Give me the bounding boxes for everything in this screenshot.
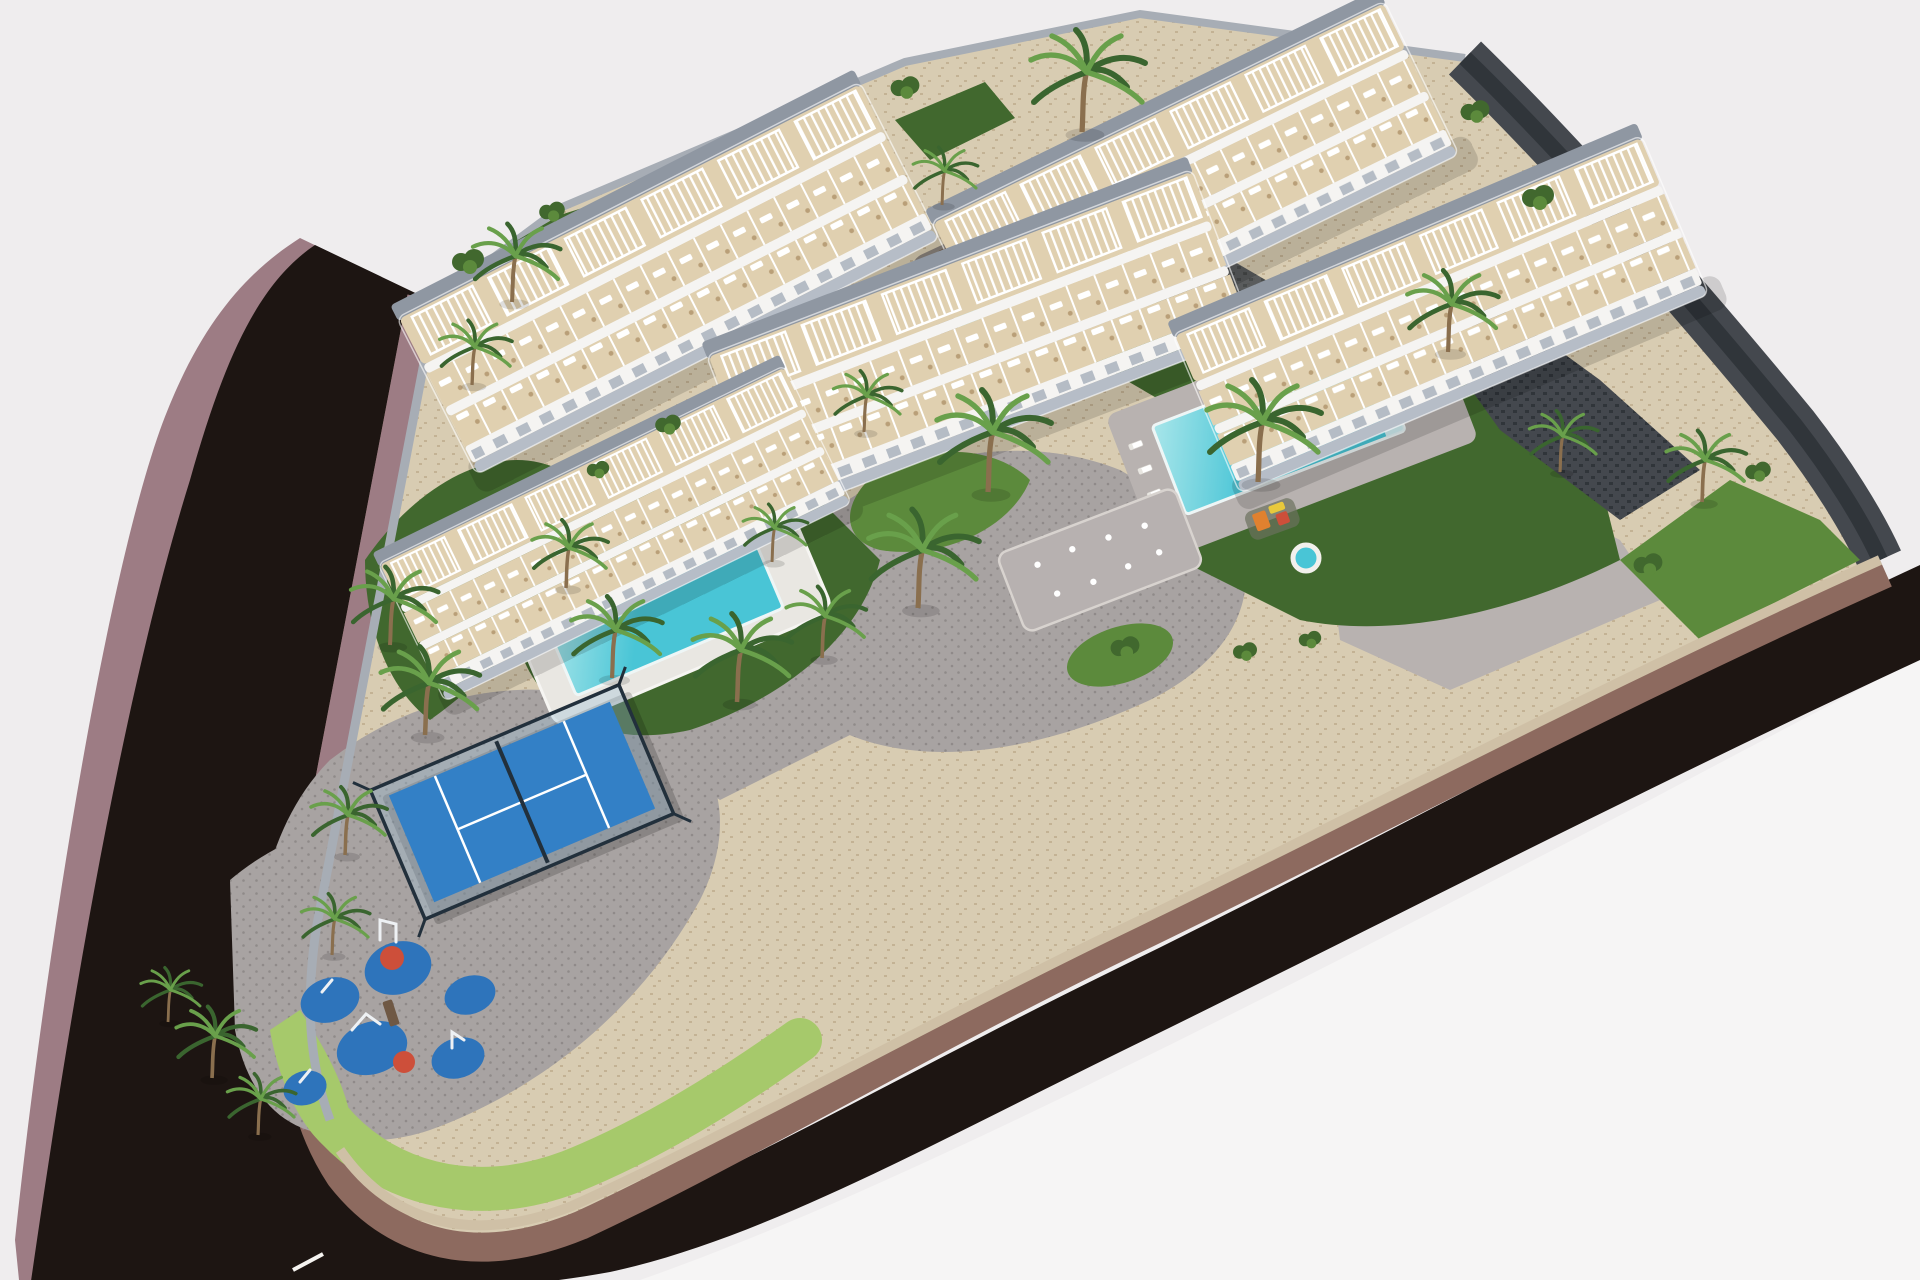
playground-red-pad: [380, 946, 404, 970]
spa-round: [1293, 545, 1319, 571]
playground-red-pad: [393, 1051, 415, 1073]
site-render: Aerial 3D architectural rendering of a w…: [0, 0, 1920, 1280]
render-canvas: Aerial 3D architectural rendering of a w…: [0, 0, 1920, 1280]
